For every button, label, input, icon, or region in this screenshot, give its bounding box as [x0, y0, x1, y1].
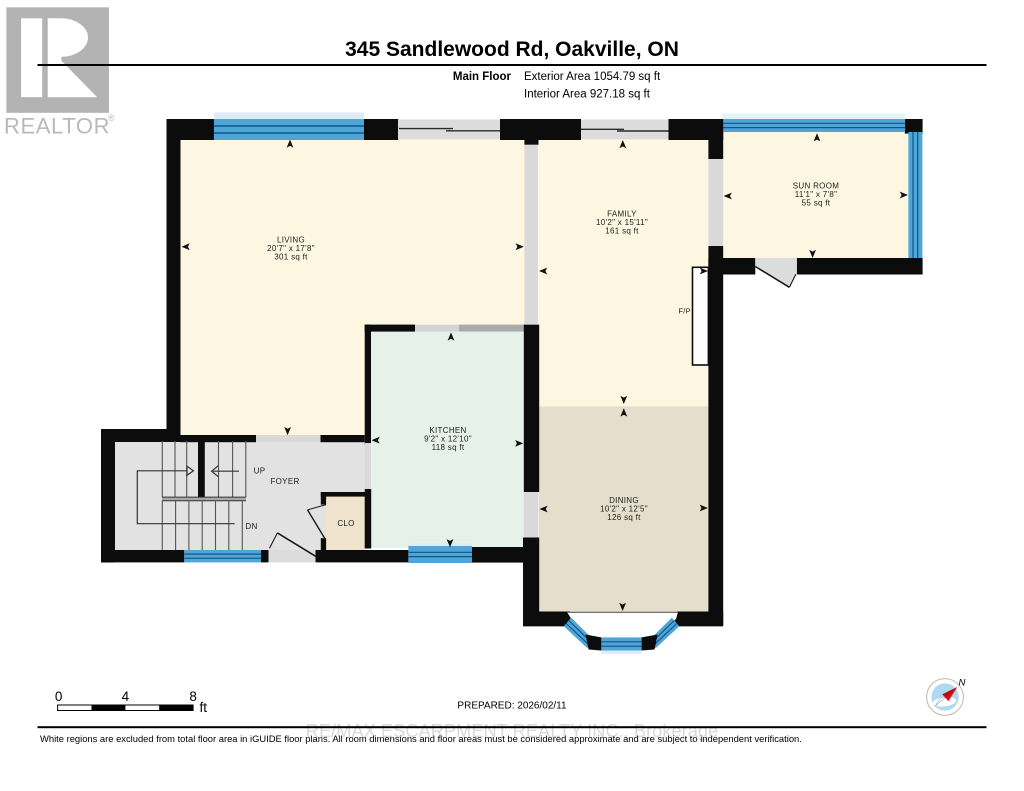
svg-text:161 sq ft: 161 sq ft	[605, 227, 639, 236]
svg-text:4: 4	[122, 689, 130, 704]
svg-text:UP: UP	[254, 466, 266, 475]
svg-text:CLO: CLO	[337, 519, 354, 528]
svg-text:F/P: F/P	[678, 307, 691, 316]
svg-text:®: ®	[108, 113, 115, 123]
svg-text:345 Sandlewood Rd, Oakville, O: 345 Sandlewood Rd, Oakville, ON	[345, 38, 679, 61]
svg-text:ft: ft	[200, 700, 208, 715]
svg-text:Exterior Area 1054.79 sq ft: Exterior Area 1054.79 sq ft	[524, 71, 661, 83]
svg-text:PREPARED: 2026/02/11: PREPARED: 2026/02/11	[457, 701, 567, 712]
svg-text:DN: DN	[245, 522, 257, 531]
svg-text:FOYER: FOYER	[270, 477, 299, 486]
svg-text:Interior Area 927.18 sq ft: Interior Area 927.18 sq ft	[524, 89, 651, 101]
svg-text:N: N	[959, 678, 966, 689]
svg-text:Main Floor: Main Floor	[453, 71, 512, 83]
svg-text:White regions are excluded fro: White regions are excluded from total fl…	[40, 733, 802, 744]
svg-text:8: 8	[189, 689, 197, 704]
svg-text:55 sq ft: 55 sq ft	[802, 199, 831, 208]
svg-text:0: 0	[55, 689, 63, 704]
svg-text:REALTOR: REALTOR	[4, 114, 110, 139]
svg-text:118 sq ft: 118 sq ft	[432, 443, 465, 452]
svg-text:126 sq ft: 126 sq ft	[607, 513, 641, 522]
svg-text:301 sq ft: 301 sq ft	[274, 253, 308, 262]
